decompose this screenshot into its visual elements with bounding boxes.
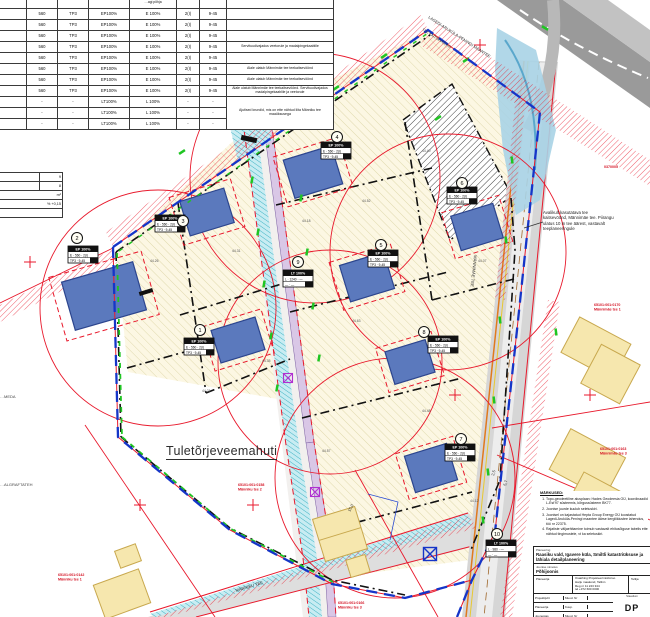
plot-number: 10: [494, 532, 500, 538]
plot-label-row: TP3 · 9-45: [370, 263, 385, 267]
road-protection-annotation: Avalikult kasutatava tee kaitsevöönd, Mä…: [543, 210, 645, 231]
cadastral-code: 65101:001:0166: [338, 601, 364, 605]
sig-role: Projektijuht: [534, 596, 564, 600]
firm-row: Planeerija Osaühing Projekteerimisbüroo …: [534, 576, 650, 594]
plot-label-row: TP3 · 9-45: [186, 351, 201, 355]
sheet-row: Joonise nimetus Põhijoonis: [534, 564, 650, 576]
cadastral-code: 65101:001:0142: [58, 573, 84, 577]
plot-number: 1: [198, 328, 201, 334]
spot-elevation: 44.52: [362, 199, 371, 203]
table-row: 560TP3EP100%E 100%2(I)9-45Alale ulatub M…: [0, 75, 334, 86]
note-item: Rajatiste väljaehitamine toimub vastaval…: [546, 527, 648, 536]
plot-label-header: EP 100%: [453, 446, 469, 450]
cadastral-code: 65101:001:0170: [594, 303, 620, 307]
cadastral-name: Männiku tee 2: [238, 488, 262, 492]
building-rights-table: …agi põhja 560TP3EP100%E 100%2(I)9-45 56…: [0, 0, 334, 130]
legend-cell: [0, 209, 63, 218]
spot-elevation: 44.57: [322, 449, 331, 453]
plot-label-header: EP 100%: [376, 252, 392, 256]
plot-label-row: E · 560 · 2(I): [323, 149, 341, 153]
stage-value: DP: [625, 603, 640, 613]
plot-label-header: EP 100%: [455, 189, 471, 193]
table-row: --LT100%L 100%--Ajutised krundid, mis on…: [0, 97, 334, 108]
table-row: 560TP3EP100%E 100%2(I)9-45: [0, 9, 334, 20]
spot-elevation: 44.40: [422, 149, 431, 153]
cadastral-code: 65101:001:0163: [600, 447, 626, 451]
spot-elevation: 44.48: [422, 409, 431, 413]
legend-cell: 8: [40, 182, 63, 191]
firm-line: tel +372 600 0000: [575, 588, 626, 592]
spot-elevation: 44.21: [202, 389, 211, 393]
plot-label-header: EP 100%: [436, 338, 452, 342]
cadastral-code: 65101:001:0158: [238, 483, 264, 487]
plot-number: 7: [459, 437, 462, 443]
sig-role: Planeerija: [534, 605, 564, 609]
plot-label-row: TP3 · 9-45: [449, 200, 464, 204]
spot-elevation: 44.12: [470, 499, 479, 503]
plot-label-header: EP 100%: [163, 217, 179, 221]
table-row: 560TP3EP100%E 100%2(I)9-45Servituudivaja…: [0, 42, 334, 53]
title-block: Planeering Raasiku vald, Igavere küla, S…: [533, 546, 650, 617]
notes-block: MÄRKUSED: Topo-geodeetiline alusplaan: H…: [540, 491, 648, 537]
plot-label-header: EP 100%: [76, 248, 92, 252]
note-item: Joonisel on kajastatud Hepta Group Energ…: [546, 513, 648, 527]
firm-info: Osaühing Projekteerimisbüroo Harju maako…: [573, 576, 628, 593]
plot-label-row: E · 560 · 2(I): [70, 253, 88, 257]
cadastral-name: Männiku tee 1: [58, 578, 82, 582]
table-row: 560TP3EP100%E 100%2(I)9-45: [0, 20, 334, 31]
plot-label-header: EP 100%: [192, 340, 208, 344]
firm-label: Planeerija: [534, 576, 573, 593]
plot-label-header: LT 100%: [291, 272, 306, 276]
sig-field: Muud. Nr: [564, 596, 588, 600]
table-row: 560TP3EP100%E 100%2(I)9-45Alale ulatub M…: [0, 64, 334, 75]
project-name: Raasiku vald, Igavere küla, Smiltli kata…: [536, 552, 649, 562]
plot-label-row: E · 560 · 2(I): [449, 194, 467, 198]
notes-title: MÄRKUSED:: [540, 491, 563, 495]
plot-number: 3: [181, 219, 184, 225]
table-row: 560TP3EP100%E 100%2(I)9-45: [0, 31, 334, 42]
plot-label-row: TP3 · 9-45: [430, 349, 445, 353]
legend-fragment-table: 9 8 m² % +0,15: [0, 172, 63, 218]
plot-label-row: — · —: [488, 553, 498, 557]
cadastral-name: Männiku tee 3: [338, 606, 362, 610]
plot-label-row: E · 560 · 2(I): [430, 343, 448, 347]
plot-number: 8: [422, 330, 425, 336]
sheet-name: Põhijoonis: [536, 569, 649, 574]
plot-label-header: LT 100%: [494, 542, 509, 546]
table-row: 560TP3EP100%E 100%2(I)9-45Alale ulatub M…: [0, 86, 334, 97]
neighbour-label-fragment: …ALGRAFTATEH: [0, 482, 33, 487]
plot-label-row: — · —: [285, 283, 295, 287]
detail-plan-sheet: EP 100%E · 560 · 2(I)TP3 · 9-45 EP 100%E…: [0, 0, 650, 617]
note-item: Joonise juurde kuulub seletuskiri.: [546, 507, 648, 512]
plot-label-row: TP3 · 9-45: [157, 228, 172, 232]
spot-elevation: 44.35: [262, 359, 271, 363]
neighbour-label-fragment: …MEDA: [0, 394, 16, 399]
plot-label-row: E · 560 · 2(I): [186, 345, 204, 349]
client-label: Tellija: [628, 576, 650, 593]
spot-elevation: 44.63: [352, 319, 361, 323]
spot-elevation: 44.31: [232, 249, 241, 253]
plot-label-row: E · 560 · 2(I): [370, 257, 388, 261]
plot-number: 5: [379, 243, 382, 249]
cadastral-name: Männimäe tee 3: [600, 452, 627, 456]
plot-label-row: E · 560 · 2(I): [157, 222, 175, 226]
annotation-line: teeplaneeringule: [543, 226, 645, 231]
table-row: …agi põhja: [0, 0, 334, 9]
plot-label-row: E · 560 · 2(I): [447, 451, 465, 455]
plot-label-row: TP3 · 9-45: [447, 457, 462, 461]
note-item: Topo-geodeetiline alusplaan: Hades Geode…: [546, 497, 648, 506]
stage-cell: Staadium DP: [613, 594, 650, 617]
spot-elevation: 44.18: [302, 219, 311, 223]
legend-cell: 9: [40, 173, 63, 182]
plot-number: 6: [460, 181, 463, 187]
plot-label-row: L · 1240 · —: [285, 277, 303, 281]
signature-grid: ProjektijuhtMuud. Nr PlaneerijaKuup. Joo…: [534, 594, 650, 617]
stage-label: Staadium: [613, 594, 650, 598]
plot-label-row: TP3 · 9-45: [323, 155, 338, 159]
project-row: Planeering Raasiku vald, Igavere küla, S…: [534, 547, 650, 564]
spot-elevation: 44.26: [150, 259, 159, 263]
legend-cell: % +0,15: [0, 200, 63, 209]
road-code: 0370005: [604, 165, 618, 169]
sig-field: Kuup.: [564, 605, 588, 609]
spot-elevation: 44.07: [478, 259, 487, 263]
cadastral-name: Männimäe tee 1: [594, 308, 621, 312]
table-header-note: …agi põhja: [130, 0, 177, 9]
plot-label-header: EP 100%: [329, 144, 345, 148]
plot-number: 2: [75, 236, 78, 242]
plot-label-row: L · 980 · —: [488, 547, 505, 551]
plot-number: 9: [296, 260, 299, 266]
table-row: 560TP3EP100%E 100%2(I)9-45: [0, 53, 334, 64]
plot-number: 4: [335, 135, 338, 141]
plot-label-row: TP3 · 9-45: [70, 259, 85, 263]
fire-water-tank-label: Tuletõrjeveemahuti: [166, 444, 277, 460]
legend-cell: m²: [0, 191, 63, 200]
